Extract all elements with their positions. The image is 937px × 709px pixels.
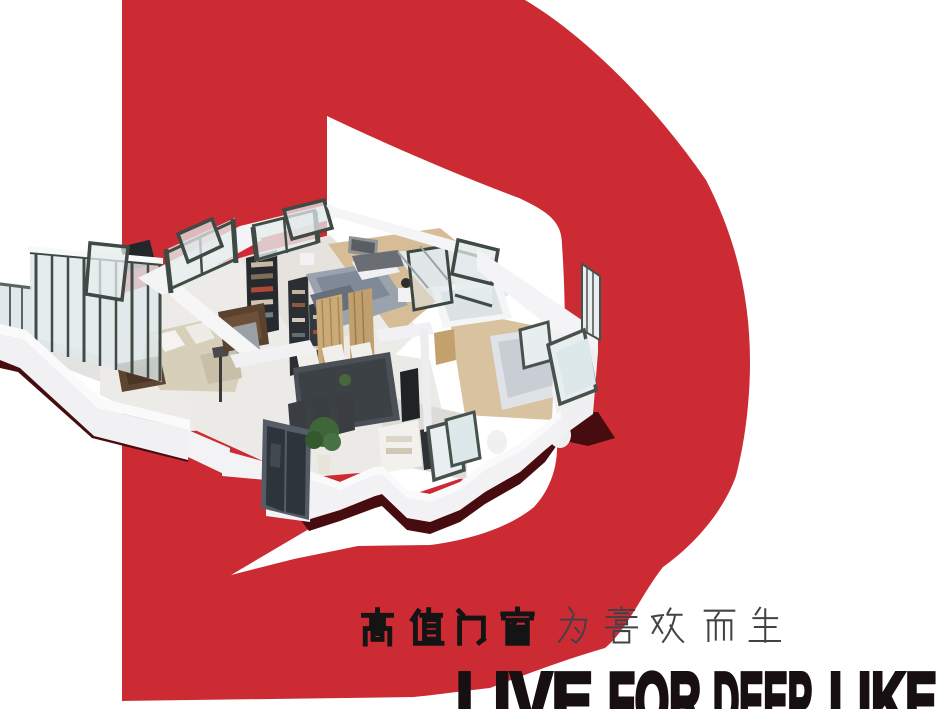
svg-text:LIKE: LIKE <box>829 656 937 709</box>
svg-text:LIVE: LIVE <box>456 656 593 709</box>
svg-text:FOR: FOR <box>608 656 701 709</box>
svg-text:DEEP: DEEP <box>713 656 812 709</box>
